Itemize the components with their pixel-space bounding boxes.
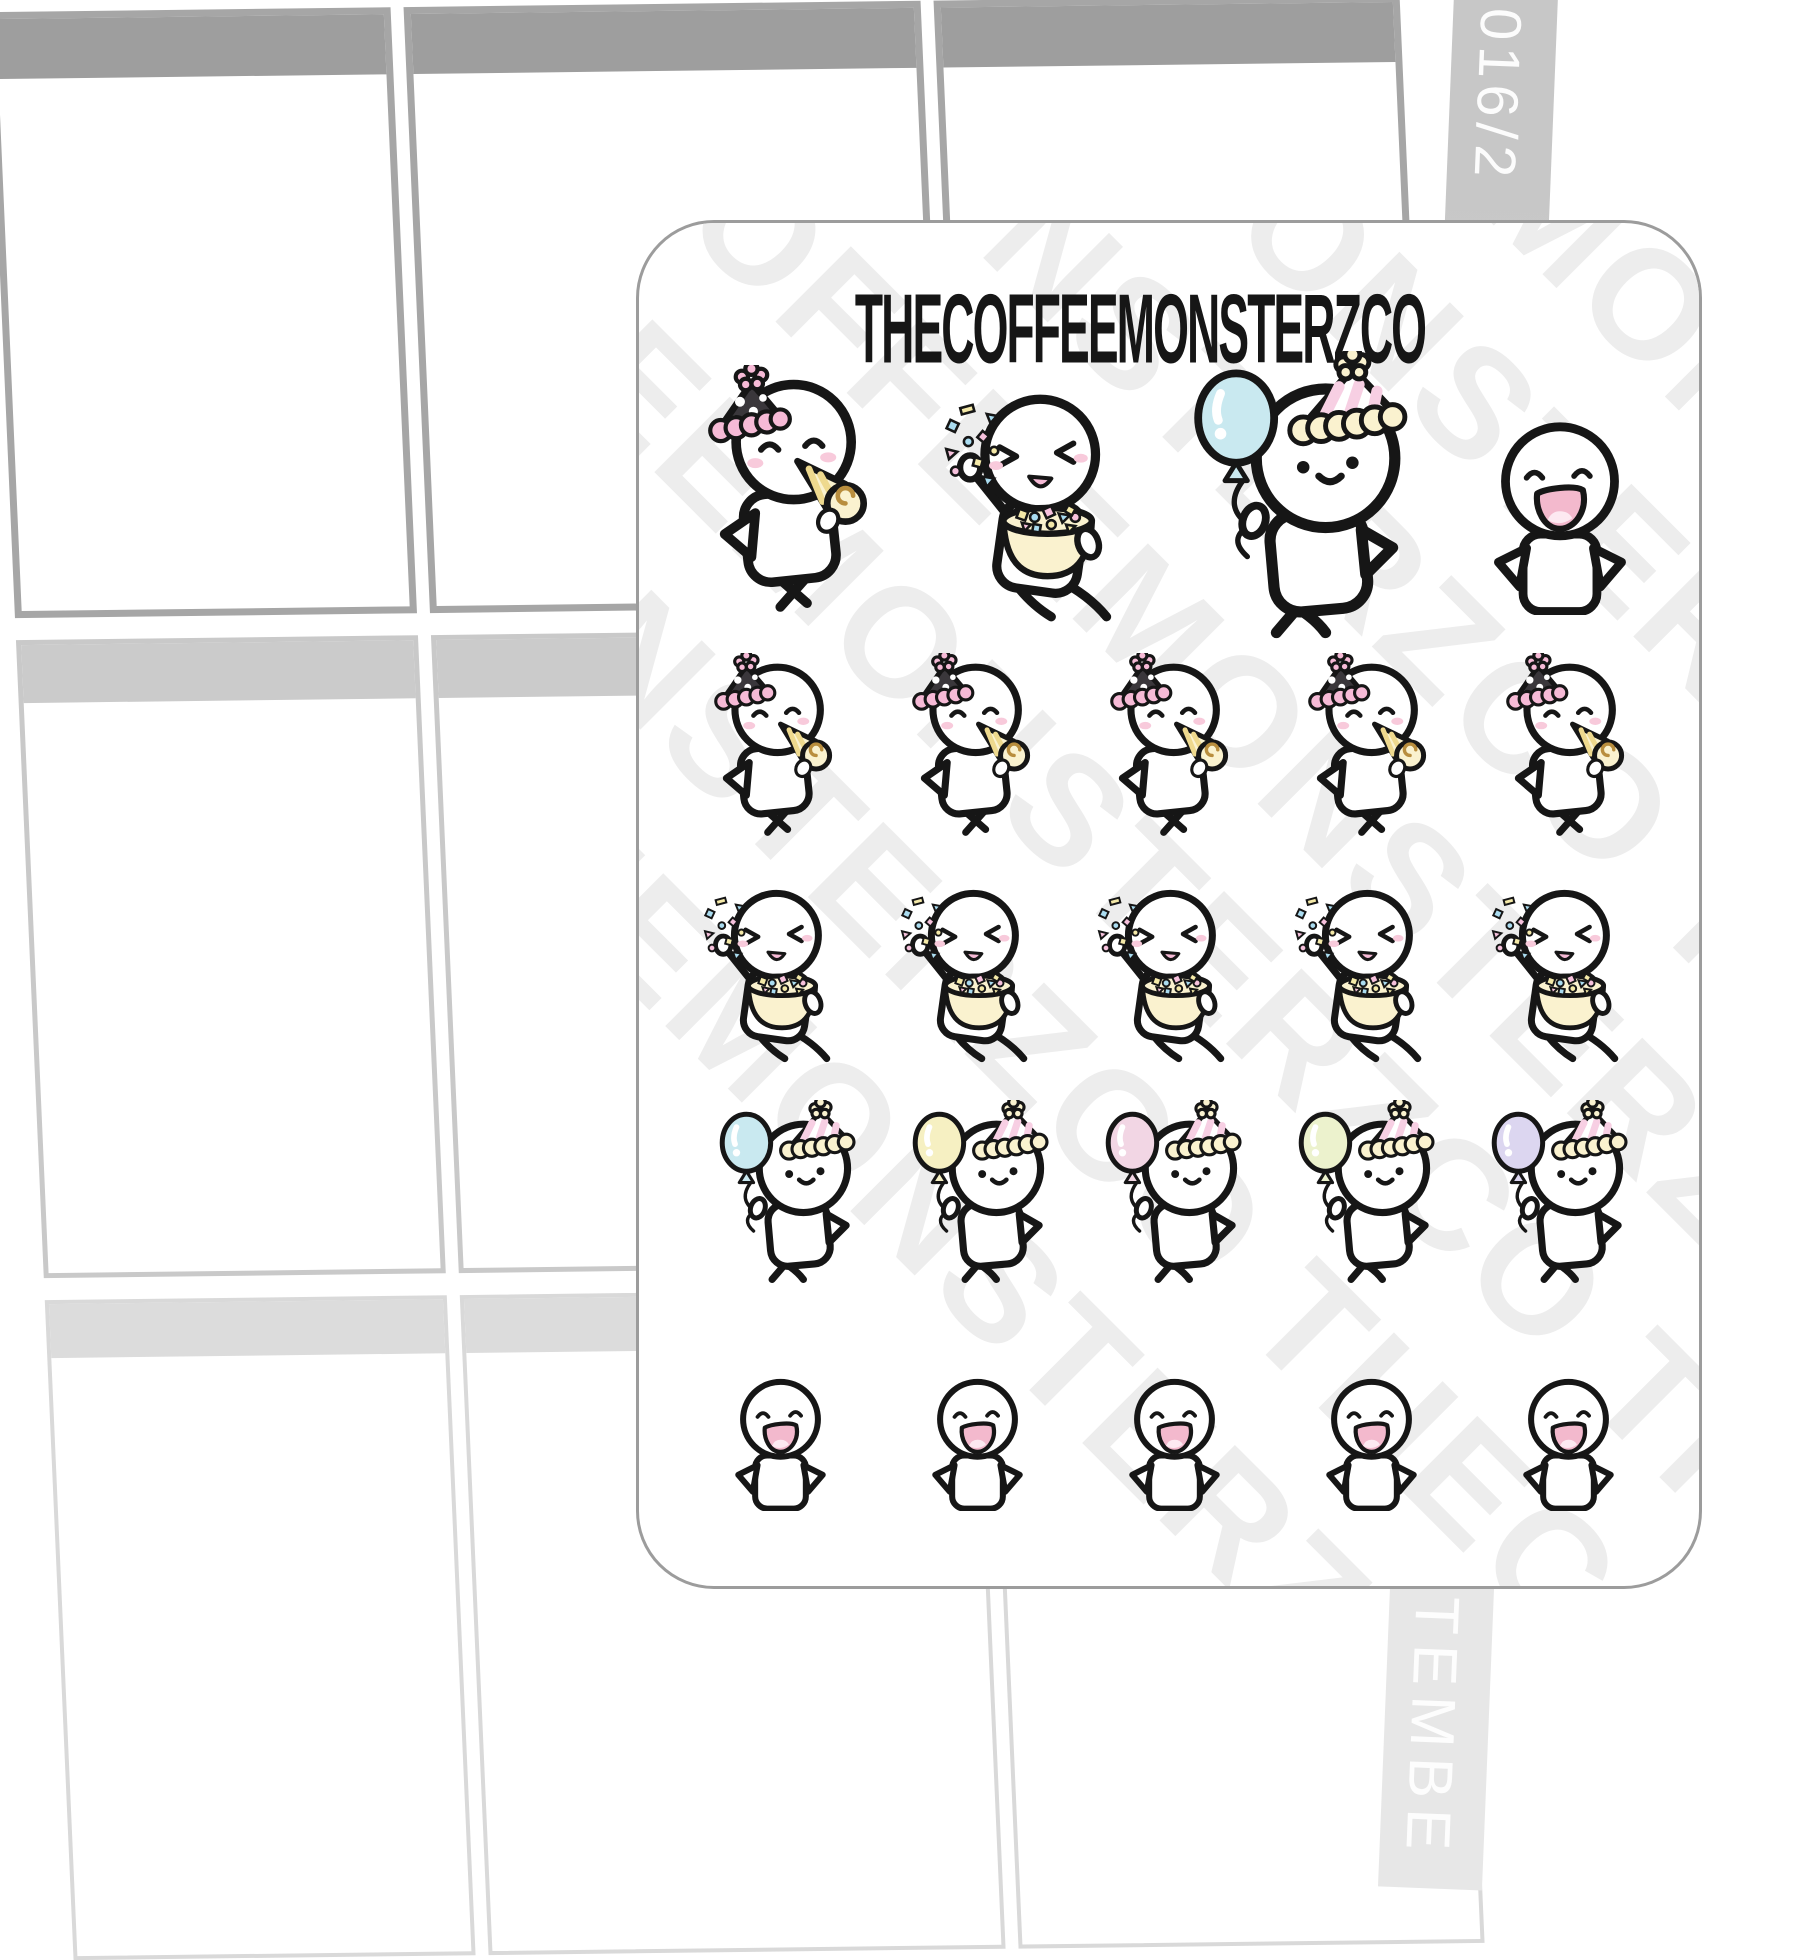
sticker-happy xyxy=(917,1371,1038,1511)
sticker-party-horn xyxy=(692,365,903,615)
planner-box xyxy=(16,635,446,1278)
sticker-confetti xyxy=(1092,885,1253,1067)
sticker-confetti xyxy=(895,885,1056,1067)
sticker-happy xyxy=(1311,1371,1432,1511)
sticker-party-horn xyxy=(702,653,859,838)
washi-tape-top-label: 2016/2 xyxy=(1460,0,1536,184)
sticker-balloon xyxy=(908,1100,1072,1288)
sticker-balloon xyxy=(715,1100,879,1288)
sticker-balloon xyxy=(1294,1100,1458,1288)
sticker-confetti xyxy=(698,885,859,1067)
sticker-confetti xyxy=(937,388,1149,628)
sticker-confetti xyxy=(1486,885,1647,1067)
washi-tape-bottom-label: TEMBE xyxy=(1391,1595,1473,1861)
sticker-party-horn xyxy=(1494,653,1651,838)
sticker-happy xyxy=(1508,1371,1629,1511)
sticker-balloon xyxy=(1187,351,1444,646)
sticker-balloon xyxy=(1487,1100,1651,1288)
sticker-confetti xyxy=(1289,885,1450,1067)
planner-box-header xyxy=(941,2,1396,68)
planner-box-header xyxy=(0,14,386,79)
planner-box-header xyxy=(21,640,416,703)
planner-box xyxy=(0,7,417,618)
planner-box-header xyxy=(49,1299,445,1358)
sticker-party-horn xyxy=(900,653,1057,838)
sticker-sheet: THECOFFEEMONSTERZCO THECOFFEEMONSTERZCO … xyxy=(636,220,1702,1589)
sticker-party-horn xyxy=(1296,653,1453,838)
planner-box-header xyxy=(411,8,917,74)
sticker-happy xyxy=(1114,1371,1235,1511)
planner-box xyxy=(45,1295,476,1960)
sticker-balloon xyxy=(1101,1100,1265,1288)
sticker-happy xyxy=(720,1371,841,1511)
sticker-party-horn xyxy=(1098,653,1255,838)
sticker-happy xyxy=(1472,411,1648,615)
